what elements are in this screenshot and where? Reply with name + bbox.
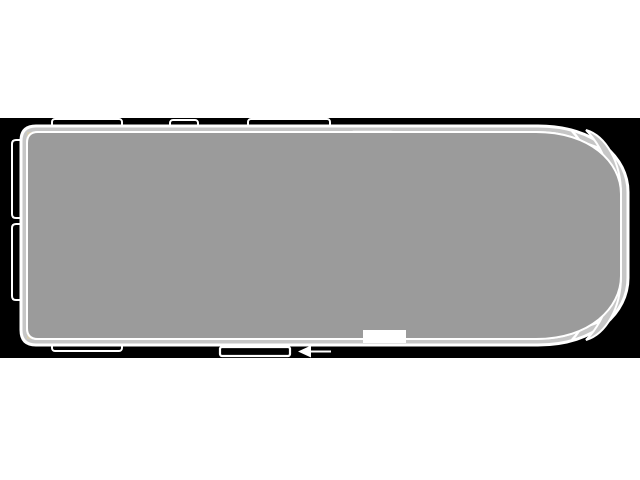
entry-step: [363, 330, 406, 343]
floorplan-image: [0, 0, 640, 480]
interior-wall-line: [27, 132, 621, 339]
floorplan-svg: [0, 0, 640, 480]
sliding-door-indicator: [220, 347, 290, 356]
